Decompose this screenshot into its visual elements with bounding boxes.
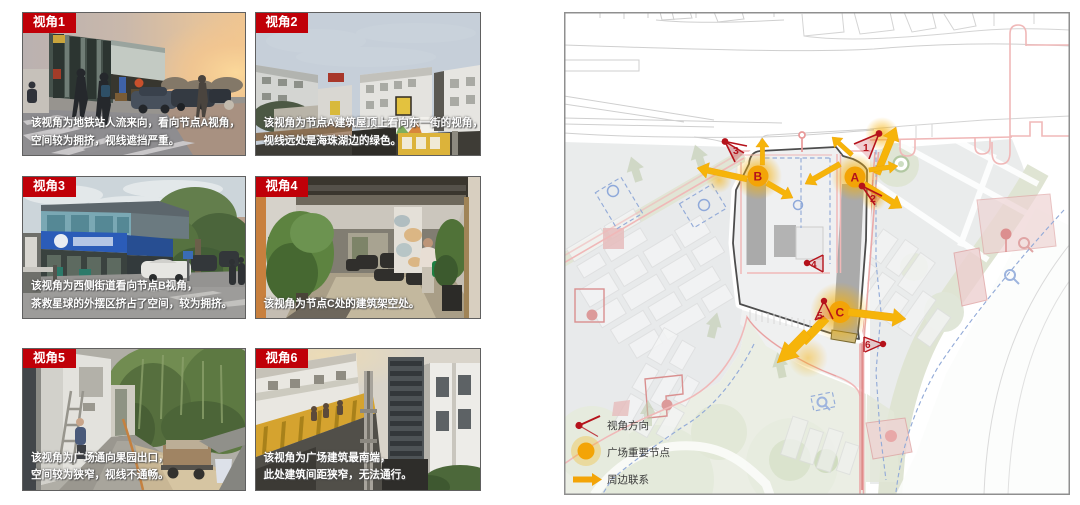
- svg-text:4: 4: [811, 260, 817, 271]
- svg-text:B: B: [754, 170, 763, 184]
- svg-text:广场重要节点: 广场重要节点: [607, 446, 670, 459]
- svg-text:C: C: [836, 306, 845, 320]
- svg-text:3: 3: [733, 145, 739, 157]
- svg-text:2: 2: [870, 193, 876, 205]
- svg-text:1: 1: [863, 142, 869, 154]
- svg-text:5: 5: [817, 311, 823, 322]
- svg-text:A: A: [851, 171, 860, 185]
- svg-text:周边联系: 周边联系: [607, 474, 649, 486]
- svg-text:视角方向: 视角方向: [607, 419, 649, 432]
- svg-text:6: 6: [865, 340, 871, 351]
